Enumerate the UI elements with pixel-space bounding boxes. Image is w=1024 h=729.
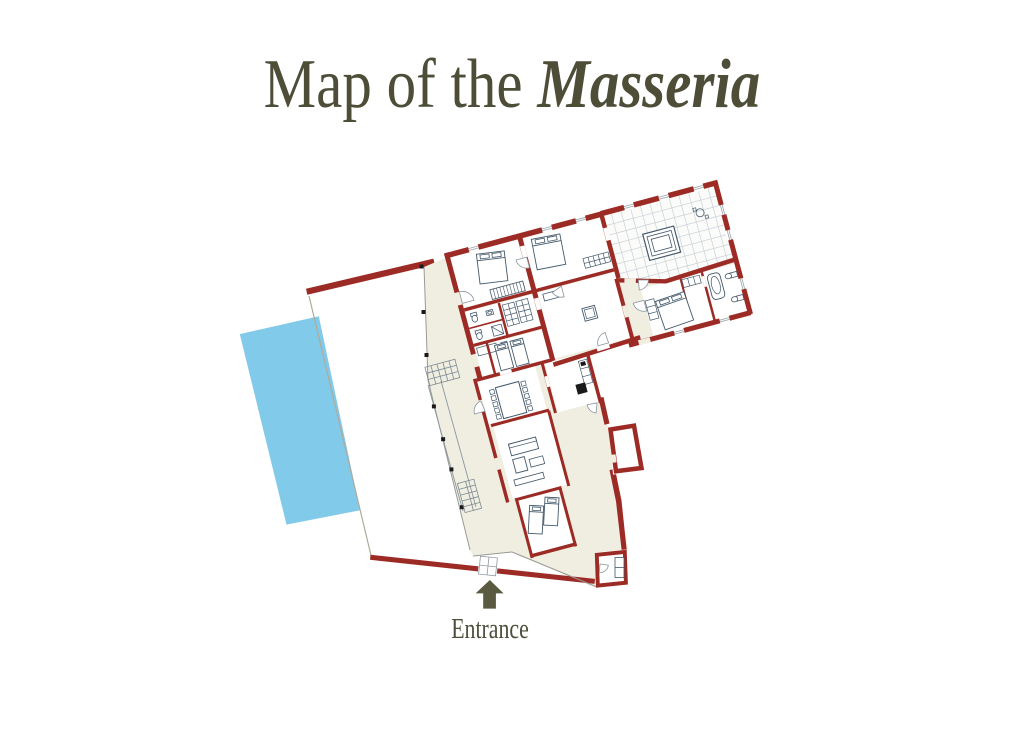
svg-text:Entrance: Entrance — [451, 615, 529, 645]
